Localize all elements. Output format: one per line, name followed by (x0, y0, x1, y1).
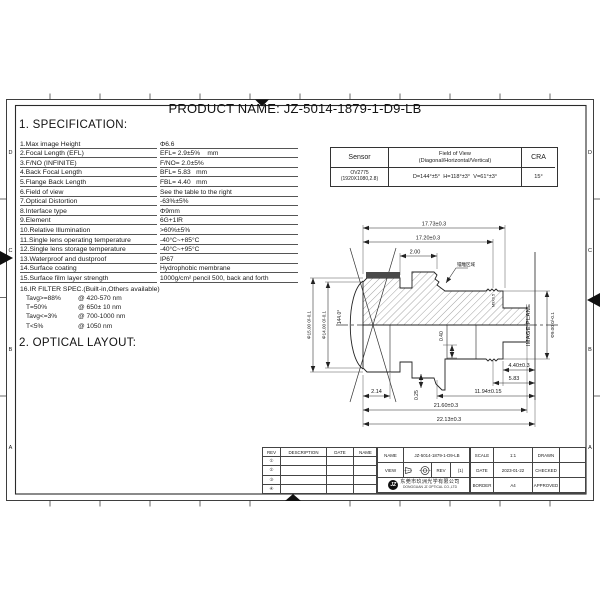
rev-name-empty (354, 466, 377, 475)
rev-header: NAME (354, 448, 377, 457)
laser-area-leader (446, 268, 468, 283)
title-block-center: NAME JZ-5014-1879-1-D9-LB VIEW REV (1) J… (377, 447, 470, 494)
laser-area-label: 镭雕区域 (457, 261, 475, 268)
dim-label: 22.13±0.3 (437, 417, 461, 423)
ir-filter-rows: Tavg>=88% @ 420-570 nm T=50% @ 650± 10 n… (20, 293, 298, 330)
spec-row: 5.Flange Back Length FBL= 4.40 mm (20, 177, 298, 187)
rev-value: (1) (451, 463, 470, 478)
spec-label: 5.Flange Back Length (20, 179, 157, 187)
extension-lines (310, 225, 550, 427)
spec-label: 13.Waterproof and dustproof (20, 256, 157, 264)
rev-date-empty (327, 466, 354, 475)
spec-value: FBL= 4.40 mm (160, 179, 298, 187)
spec-value: Hydrophobic membrane (160, 265, 298, 273)
spec-value: EFL= 2.9±5% mm (160, 150, 298, 158)
dim-label: 0.25 (414, 390, 420, 400)
fov-cell: D=144°±5° H=118°±3° V=61°±3° (388, 168, 521, 186)
spec-row: 12.Single lens storage temperature -40°C… (20, 245, 298, 255)
checked-value-empty (560, 463, 586, 478)
company-name-en: DONGGUAN JZ OPTICAL CO.,LTD (403, 486, 457, 490)
ir-filter-wavelength: @ 700-1000 nm (78, 313, 125, 320)
rev-label: REV (432, 463, 451, 478)
rev-header: DESCRIPTION (281, 448, 327, 457)
rev-description-empty (281, 485, 327, 494)
spec-row: 15.Surface film layer strength 1000g/cm²… (20, 273, 298, 283)
zone-letter: C (588, 248, 592, 254)
spec-label: 15.Surface film layer strength (20, 275, 157, 283)
spec-section-heading: 1. SPECIFICATION: (19, 119, 127, 131)
spec-label: 3.F/NO (INFINITE) (20, 160, 157, 168)
rev-header: REV (263, 448, 281, 457)
spec-value: -40°C~+95°C (160, 246, 298, 254)
rev-date-empty (327, 457, 354, 466)
zone-letter: B (9, 347, 13, 353)
spec-label: 9.Element (20, 217, 157, 225)
dim-label: 0.40 (439, 331, 445, 341)
dimension-lines (313, 228, 547, 424)
spec-label: 14.Surface coating (20, 265, 157, 273)
dim-label: 17.73±0.3 (422, 222, 446, 228)
spec-value: Φ6.6 (160, 141, 298, 149)
company-logo: JZ (388, 480, 398, 490)
approved-value-empty (560, 478, 586, 493)
sensor-cell: OV2775 (1920X1080,2.8) (331, 168, 388, 186)
rev-name-empty (354, 476, 377, 485)
dim-label: Φ15.00 0/-0.1 (307, 310, 312, 339)
ir-filter-transmittance: T<5% (26, 323, 78, 330)
date-value: 2023-01-22 (494, 463, 533, 478)
rev-date-empty (327, 476, 354, 485)
cra-cell: 15° (521, 168, 555, 186)
dim-label: 5.83 (509, 376, 520, 382)
dim-label: Φ9.00 0/-0.1 (550, 312, 555, 338)
ir-filter-wavelength: @ 650± 10 nm (78, 304, 121, 311)
spec-value: See the table to the right (160, 189, 298, 197)
spec-label: 10.Relative Illumination (20, 227, 157, 235)
rev-number: ③ (263, 476, 281, 485)
spec-row: 2.Focal Length (EFL) EFL= 2.9±5% mm (20, 149, 298, 159)
scale-value: 1:1 (494, 448, 533, 463)
drawn-value-empty (560, 448, 586, 463)
coating-strip (366, 272, 400, 278)
cra-col-header: CRA (521, 148, 555, 168)
dim-label: 17.20±0.3 (416, 236, 440, 242)
rev-name-empty (354, 457, 377, 466)
spec-label: 6.Field of view (20, 189, 157, 197)
spec-row: 14.Surface coating Hydrophobic membrane (20, 264, 298, 274)
spec-label: 11.Single lens operating temperature (20, 237, 157, 245)
spec-label: 12.Single lens storage temperature (20, 246, 157, 254)
ir-filter-transmittance: Tavg<=3% (26, 313, 78, 320)
thread-label: M9X0.5 (492, 294, 496, 307)
approved-label: APPROVED (533, 478, 560, 493)
ir-filter-row: T<5% @ 1050 nm (20, 320, 298, 329)
zone-letter: A (9, 445, 13, 451)
ir-filter-row: Tavg<=3% @ 700-1000 nm (20, 311, 298, 320)
rev-date-empty (327, 485, 354, 494)
sensor-col-header: Sensor (331, 148, 388, 168)
revision-table: REV DESCRIPTION DATE NAME ① ② ③ ④ (262, 447, 377, 494)
spec-value: >60%±5% (160, 227, 298, 235)
spec-label: 7.Optical Distortion (20, 198, 157, 206)
border-label: BORDER (471, 478, 494, 493)
rev-header: DATE (327, 448, 354, 457)
dim-label: Φ14.00 0/-0.1 (322, 310, 327, 339)
ir-filter-row: T=50% @ 650± 10 nm (20, 302, 298, 311)
rev-number: ② (263, 466, 281, 475)
spec-label: 4.Back Focal Length (20, 169, 157, 177)
spec-value: BFL= 5.83 mm (160, 169, 298, 177)
spec-row: 1.Max image Height Φ6.6 (20, 139, 298, 149)
spec-row: 4.Back Focal Length BFL= 5.83 mm (20, 168, 298, 178)
border-value: A4 (494, 478, 533, 493)
ir-filter-transmittance: T=50% (26, 304, 78, 311)
spec-value: 1000g/cm² pencil 500, back and forth (160, 275, 298, 283)
spec-row: 11.Single lens operating temperature -40… (20, 235, 298, 245)
spec-value: IP67 (160, 256, 298, 264)
view-label: VIEW (378, 463, 404, 478)
date-label: DATE (471, 463, 494, 478)
center-mark-bottom (285, 494, 301, 501)
dim-label: 21.60±0.3 (434, 403, 458, 409)
ir-filter-row: Tavg>=88% @ 420-570 nm (20, 293, 298, 302)
dim-label: 2.14 (371, 389, 382, 395)
spec-value: 6G+1IR (160, 217, 298, 225)
rev-number: ④ (263, 485, 281, 494)
drawn-label: DRAWN (533, 448, 560, 463)
dim-label: 2.00 (410, 250, 421, 256)
spec-value: F/NO= 2.0±5% (160, 160, 298, 168)
spec-row: 3.F/NO (INFINITE) F/NO= 2.0±5% (20, 158, 298, 168)
drawing-sheet: D C B A D C B A (0, 0, 600, 600)
ir-filter-title: 16.IR FILTER SPEC.(Built-in,Others avail… (20, 283, 298, 293)
fov-col-header: Field of View (Diagonal/Horizontal/Verti… (388, 148, 521, 168)
spec-value: Φ9mm (160, 208, 298, 216)
ir-filter-wavelength: @ 1050 nm (78, 323, 112, 330)
page-title: PRODUCT NAME: JZ-5014-1879-1-D9-LB (130, 101, 460, 116)
checked-label: CHECKED (533, 463, 560, 478)
sensor-table: Sensor Field of View (Diagonal/Horizonta… (330, 147, 558, 187)
barrel-section-upper (363, 272, 527, 325)
title-block-right: SCALE 1:1 DRAWN DATE 2023-01-22 CHECKED … (470, 447, 586, 494)
rev-name-empty (354, 485, 377, 494)
sensor-resolution: (1920X1080,2.8) (341, 177, 378, 183)
layout-section-heading: 2. OPTICAL LAYOUT: (19, 337, 136, 349)
spec-label: 2.Focal Length (EFL) (20, 150, 157, 158)
spec-row: 13.Waterproof and dustproof IP67 (20, 254, 298, 264)
dim-label: 4.40±0.3 (508, 363, 529, 369)
projection-view-icon (404, 463, 432, 478)
spec-row: 10.Relative Illumination >60%±5% (20, 225, 298, 235)
spec-row: 8.Interface type Φ9mm (20, 206, 298, 216)
rev-number: ① (263, 457, 281, 466)
drawing-name-value: JZ-5014-1879-1-D9-LB (404, 448, 470, 463)
specification-list: 1.Max image Height Φ6.6 2.Focal Length (… (20, 139, 298, 283)
company-cell: JZ 东莞市玖洲光学有限公司 DONGGUAN JZ OPTICAL CO.,L… (378, 478, 470, 493)
fov-header-line2: (Diagonal/Horizontal/Vertical) (419, 158, 491, 164)
spec-row: 6.Field of view See the table to the rig… (20, 187, 298, 197)
barrel-section-lower (363, 325, 527, 390)
scale-label: SCALE (471, 448, 494, 463)
ir-filter-transmittance: Tavg>=88% (26, 295, 78, 302)
rev-description-empty (281, 466, 327, 475)
zone-letter: D (588, 150, 592, 156)
dim-label: 144.0° (337, 310, 343, 325)
ir-filter-wavelength: @ 420-570 nm (78, 295, 122, 302)
rev-description-empty (281, 476, 327, 485)
image-plane-label: IMAGE PLANE (526, 304, 532, 347)
dim-label: 11.94±0.15 (474, 389, 501, 395)
zone-letter: B (588, 347, 592, 353)
spec-value: -63%±5% (160, 198, 298, 206)
spec-row: 7.Optical Distortion -63%±5% (20, 197, 298, 207)
name-label: NAME (378, 448, 404, 463)
zone-letter: C (9, 248, 13, 254)
spec-label: 8.Interface type (20, 208, 157, 216)
rev-description-empty (281, 457, 327, 466)
spec-label: 1.Max image Height (20, 141, 157, 149)
ir-filter-spec: 16.IR FILTER SPEC.(Built-in,Others avail… (20, 283, 298, 330)
spec-row: 9.Element 6G+1IR (20, 216, 298, 226)
zone-letter: D (9, 150, 13, 156)
zone-letter: A (588, 445, 592, 451)
spec-value: -40°C~+85°C (160, 237, 298, 245)
